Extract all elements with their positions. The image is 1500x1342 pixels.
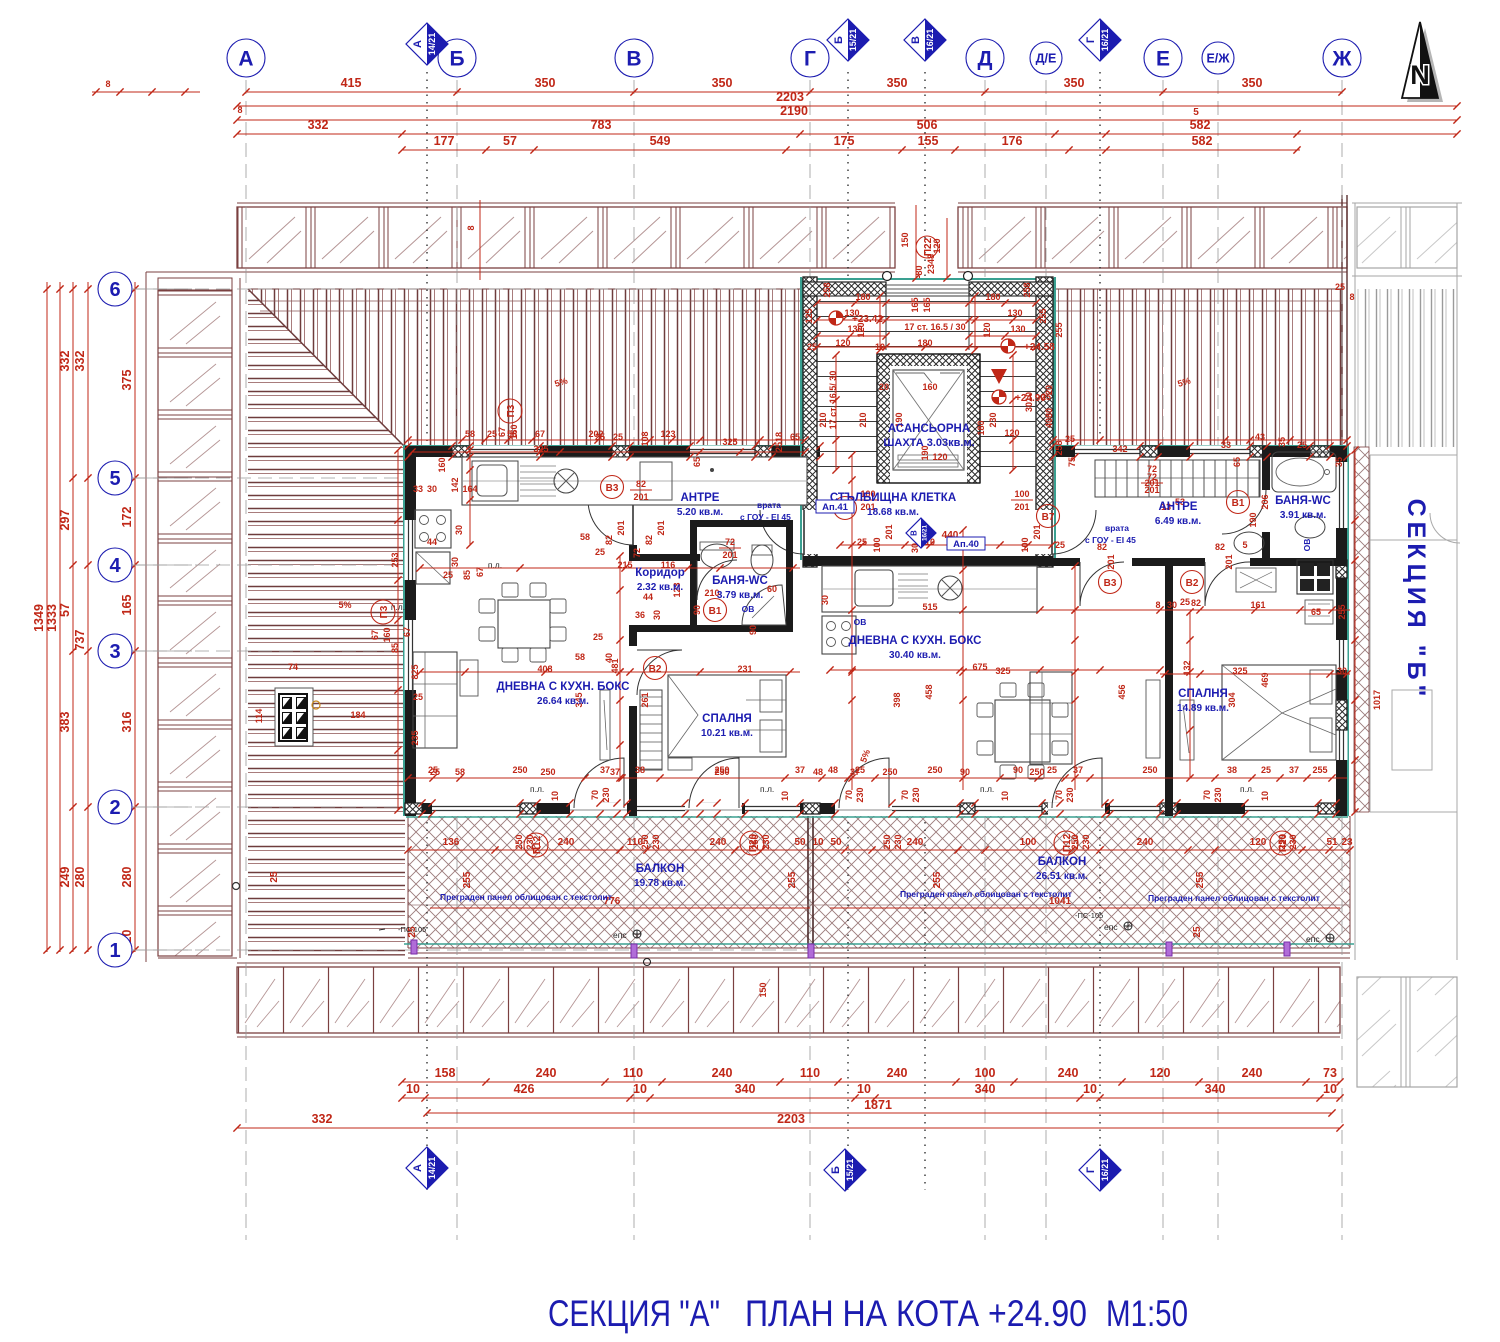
svg-text:4: 4 — [109, 555, 121, 577]
svg-text:130: 130 — [1007, 308, 1022, 318]
svg-text:5.20 кв.м.: 5.20 кв.м. — [677, 507, 724, 518]
svg-text:2190: 2190 — [780, 104, 808, 118]
svg-text:-ПС-105: -ПС-105 — [398, 925, 426, 934]
svg-text:врата: врата — [1105, 523, 1129, 533]
svg-text:82: 82 — [644, 535, 654, 545]
svg-text:255: 255 — [1038, 308, 1048, 323]
svg-text:25: 25 — [1065, 434, 1075, 444]
svg-text:180: 180 — [976, 420, 986, 435]
svg-text:А: А — [412, 1164, 424, 1172]
svg-text:332: 332 — [58, 351, 72, 372]
svg-text:110: 110 — [800, 1066, 820, 1080]
svg-text:250: 250 — [540, 767, 555, 777]
svg-text:481: 481 — [610, 658, 620, 673]
svg-text:25: 25 — [1261, 765, 1271, 775]
svg-text:Е: Е — [1156, 47, 1170, 70]
svg-text:250: 250 — [640, 834, 650, 849]
svg-text:230: 230 — [893, 834, 903, 849]
svg-text:250: 250 — [1142, 765, 1157, 775]
svg-text:10: 10 — [780, 791, 790, 801]
svg-text:120: 120 — [1150, 1066, 1171, 1080]
svg-text:Преграден панел облицован с те: Преграден панел облицован с текстолит — [1148, 893, 1320, 903]
svg-text:16/21: 16/21 — [1100, 29, 1110, 52]
svg-text:30: 30 — [454, 525, 464, 535]
svg-text:23: 23 — [1341, 837, 1353, 848]
svg-text:БАНЯ-WC: БАНЯ-WC — [1275, 495, 1331, 507]
svg-text:37: 37 — [1073, 765, 1083, 775]
svg-text:Ап.40: Ап.40 — [953, 539, 979, 550]
svg-text:250: 250 — [1029, 767, 1044, 777]
svg-text:230: 230 — [855, 787, 865, 802]
svg-text:255: 255 — [1312, 765, 1327, 775]
svg-text:65: 65 — [692, 457, 702, 467]
svg-text:57: 57 — [58, 603, 72, 617]
svg-text:201: 201 — [1032, 524, 1042, 539]
svg-text:СПАЛНЯ: СПАЛНЯ — [702, 713, 752, 725]
svg-text:36: 36 — [635, 610, 645, 620]
svg-text:70: 70 — [1202, 790, 1212, 800]
svg-text:70: 70 — [590, 790, 600, 800]
svg-text:25: 25 — [1055, 540, 1065, 550]
svg-text:п.л.: п.л. — [530, 784, 544, 794]
svg-text:515: 515 — [922, 602, 937, 612]
svg-text:Коридор: Коридор — [635, 567, 685, 579]
svg-text:201: 201 — [1224, 554, 1234, 569]
svg-text:2.32 кв.м.: 2.32 кв.м. — [637, 582, 684, 593]
svg-text:5%: 5% — [338, 600, 351, 610]
svg-text:255: 255 — [1054, 322, 1064, 337]
svg-text:240: 240 — [710, 837, 727, 848]
svg-text:30: 30 — [1167, 600, 1177, 610]
svg-text:8: 8 — [105, 79, 110, 89]
svg-text:Ап.41: Ап.41 — [822, 502, 849, 513]
svg-text:50: 50 — [830, 837, 842, 848]
svg-text:340: 340 — [1205, 1082, 1226, 1096]
svg-text:249: 249 — [58, 867, 72, 888]
svg-text:П3: П3 — [379, 605, 390, 618]
svg-text:67: 67 — [370, 630, 380, 640]
svg-text:Преграден панел облицован с те: Преграден панел облицован с текстолит — [900, 889, 1072, 899]
svg-text:250: 250 — [882, 767, 897, 777]
svg-text:58: 58 — [465, 429, 475, 439]
svg-text:10: 10 — [1260, 791, 1270, 801]
svg-text:206: 206 — [1260, 494, 1270, 509]
svg-text:44: 44 — [643, 592, 653, 602]
svg-text:37: 37 — [1289, 765, 1299, 775]
svg-text:БАНЯ-WC: БАНЯ-WC — [712, 575, 768, 587]
svg-text:2203: 2203 — [776, 90, 804, 104]
svg-text:120: 120 — [982, 322, 992, 337]
svg-text:258: 258 — [822, 282, 832, 297]
svg-text:СЕКЦИЯ "Б": СЕКЦИЯ "Б" — [1402, 499, 1430, 702]
svg-text:Б: Б — [833, 36, 845, 44]
svg-text:250: 250 — [882, 834, 892, 849]
svg-text:158: 158 — [435, 1066, 456, 1080]
svg-text:А: А — [412, 40, 424, 48]
svg-text:172: 172 — [120, 507, 134, 528]
svg-text:201: 201 — [722, 550, 737, 560]
svg-text:58: 58 — [575, 652, 585, 662]
svg-text:350: 350 — [535, 76, 556, 90]
svg-text:37: 37 — [610, 767, 620, 777]
svg-text:АНТРЕ: АНТРЕ — [1159, 501, 1198, 513]
svg-text:епс: епс — [1306, 934, 1320, 944]
svg-text:90: 90 — [692, 605, 702, 615]
svg-text:72: 72 — [1147, 472, 1157, 482]
svg-text:123: 123 — [660, 429, 675, 439]
svg-text:6.49 кв.м.: 6.49 кв.м. — [1155, 516, 1202, 527]
svg-text:п.л.: п.л. — [760, 784, 774, 794]
svg-text:73: 73 — [1323, 1066, 1337, 1080]
svg-text:10: 10 — [1000, 791, 1010, 801]
svg-text:БАЛКОН: БАЛКОН — [1038, 856, 1087, 868]
svg-text:епс: епс — [1104, 922, 1118, 932]
svg-text:8: 8 — [1155, 600, 1160, 610]
svg-text:350: 350 — [1064, 76, 1085, 90]
svg-text:25: 25 — [1180, 597, 1190, 607]
svg-text:261: 261 — [640, 692, 650, 707]
svg-text:210: 210 — [818, 412, 828, 427]
svg-text:1017: 1017 — [1372, 690, 1382, 710]
svg-text:50: 50 — [794, 837, 806, 848]
svg-text:240: 240 — [558, 837, 575, 848]
svg-text:25: 25 — [1335, 282, 1345, 292]
svg-text:82: 82 — [1191, 598, 1201, 608]
svg-text:160: 160 — [437, 457, 447, 472]
svg-text:176: 176 — [1002, 134, 1023, 148]
svg-text:120: 120 — [932, 452, 947, 462]
svg-text:250: 250 — [927, 765, 942, 775]
svg-text:ПЛАН НА КОТА +24.90: ПЛАН НА КОТА +24.90 — [745, 1293, 1087, 1334]
svg-text:114: 114 — [254, 709, 264, 724]
svg-text:с ГОУ - ЕІ 45: с ГОУ - ЕІ 45 — [1085, 535, 1136, 545]
svg-text:19.78 кв.м.: 19.78 кв.м. — [634, 878, 686, 889]
svg-text:30: 30 — [820, 595, 830, 605]
svg-text:426: 426 — [514, 1082, 535, 1096]
svg-text:201: 201 — [656, 520, 666, 535]
svg-text:375: 375 — [120, 370, 134, 391]
svg-text:Преграден панел облицован с те: Преграден панел облицован с текстолит — [440, 892, 612, 902]
svg-text:4080: 4080 — [1044, 408, 1054, 428]
svg-text:5: 5 — [109, 468, 120, 490]
svg-text:В3: В3 — [606, 483, 619, 494]
svg-text:125: 125 — [804, 308, 814, 323]
svg-text:67: 67 — [535, 429, 545, 439]
svg-text:П12: П12 — [1062, 833, 1073, 852]
svg-text:+24.90: +24.90 — [1015, 393, 1046, 404]
svg-text:Г: Г — [804, 47, 816, 70]
svg-text:85: 85 — [462, 570, 472, 580]
svg-text:25: 25 — [430, 767, 440, 777]
svg-text:2: 2 — [109, 797, 120, 819]
svg-text:180: 180 — [985, 292, 1000, 302]
svg-text:N: N — [1410, 60, 1430, 90]
svg-text:250: 250 — [714, 767, 729, 777]
svg-text:10.21 кв.м.: 10.21 кв.м. — [701, 728, 753, 739]
svg-text:В3: В3 — [1104, 578, 1117, 589]
svg-text:10: 10 — [857, 1082, 871, 1096]
svg-text:230: 230 — [651, 834, 661, 849]
svg-text:Ж: Ж — [1332, 47, 1353, 70]
svg-text:255: 255 — [787, 871, 798, 888]
svg-text:25: 25 — [595, 547, 605, 557]
svg-text:75: 75 — [1067, 457, 1077, 467]
svg-text:+24.58: +24.58 — [1024, 342, 1055, 353]
svg-text:70: 70 — [1054, 790, 1064, 800]
svg-text:ДНЕВНА С КУХН. БОКС: ДНЕВНА С КУХН. БОКС — [497, 681, 630, 693]
svg-text:5: 5 — [1242, 540, 1247, 550]
svg-text:82: 82 — [1215, 542, 1225, 552]
svg-text:255: 255 — [932, 871, 943, 888]
svg-text:А: А — [238, 47, 253, 70]
svg-text:38: 38 — [1227, 765, 1237, 775]
svg-text:ОВ: ОВ — [742, 604, 755, 614]
svg-text:В1: В1 — [1232, 498, 1245, 509]
svg-text:332: 332 — [312, 1112, 333, 1126]
svg-text:СЕКЦИЯ "А": СЕКЦИЯ "А" — [548, 1293, 720, 1334]
svg-text:456: 456 — [1117, 684, 1127, 699]
svg-text:65: 65 — [1311, 607, 1321, 617]
svg-text:35: 35 — [1334, 457, 1344, 467]
svg-text:17 ст. 16.5 / 30: 17 ст. 16.5 / 30 — [904, 322, 965, 332]
svg-text:160: 160 — [382, 627, 392, 642]
svg-text:825: 825 — [410, 664, 420, 679]
svg-text:33: 33 — [1221, 440, 1231, 450]
svg-text:44: 44 — [427, 537, 437, 547]
svg-text:142: 142 — [450, 477, 460, 492]
svg-text:П20: П20 — [1278, 833, 1289, 852]
svg-text:177: 177 — [434, 134, 455, 148]
svg-text:37: 37 — [600, 765, 610, 775]
svg-text:582: 582 — [1192, 134, 1213, 148]
svg-text:130: 130 — [847, 324, 862, 334]
svg-text:582: 582 — [1190, 118, 1211, 132]
svg-text:ОВ: ОВ — [1302, 539, 1312, 552]
svg-text:14.89 кв.м.: 14.89 кв.м. — [1177, 703, 1229, 714]
svg-text:240: 240 — [1137, 837, 1154, 848]
svg-text:165: 165 — [120, 595, 134, 616]
svg-text:67: 67 — [497, 427, 507, 437]
svg-text:332: 332 — [308, 118, 329, 132]
svg-text:150: 150 — [900, 232, 910, 247]
svg-text:201: 201 — [616, 520, 626, 535]
svg-text:15/21: 15/21 — [845, 1159, 855, 1182]
svg-text:10: 10 — [812, 837, 824, 848]
svg-text:+23.42: +23.42 — [852, 314, 883, 325]
svg-text:155: 155 — [918, 134, 939, 148]
svg-text:30: 30 — [450, 557, 460, 567]
svg-text:297: 297 — [58, 510, 72, 531]
svg-text:100: 100 — [1020, 837, 1037, 848]
svg-text:25: 25 — [593, 632, 603, 642]
svg-text:Д: Д — [978, 47, 993, 70]
svg-text:врата: врата — [757, 500, 781, 510]
svg-text:3.91 кв.м.: 3.91 кв.м. — [1280, 510, 1327, 521]
svg-text:33: 33 — [413, 484, 423, 494]
svg-text:БАЛКОН: БАЛКОН — [636, 863, 685, 875]
svg-text:25: 25 — [807, 342, 817, 352]
svg-text:67: 67 — [402, 627, 412, 637]
svg-text:255: 255 — [462, 871, 473, 888]
svg-text:25: 25 — [1047, 765, 1057, 775]
svg-text:58: 58 — [580, 532, 590, 542]
svg-text:240: 240 — [1242, 1066, 1263, 1080]
svg-text:30.40 кв.м.: 30.40 кв.м. — [889, 650, 941, 661]
svg-text:230: 230 — [988, 412, 998, 427]
svg-text:20: 20 — [879, 382, 889, 392]
svg-text:В: В — [910, 530, 919, 536]
svg-text:342: 342 — [1112, 444, 1127, 454]
svg-text:175: 175 — [834, 134, 855, 148]
svg-text:10: 10 — [550, 791, 560, 801]
svg-text:783: 783 — [591, 118, 612, 132]
svg-text:74: 74 — [288, 662, 298, 672]
svg-text:Б: Б — [449, 47, 464, 70]
svg-text:26.64 кв.м.: 26.64 кв.м. — [537, 696, 589, 707]
svg-text:ШАХТА 3.03кв.м.: ШАХТА 3.03кв.м. — [883, 437, 974, 449]
svg-text:2518: 2518 — [774, 432, 784, 452]
svg-text:398: 398 — [892, 692, 902, 707]
svg-text:3.79 кв.м.: 3.79 кв.м. — [717, 590, 764, 601]
svg-text:30: 30 — [652, 610, 662, 620]
svg-text:90: 90 — [1013, 765, 1023, 775]
svg-text:48: 48 — [828, 765, 838, 775]
svg-text:108: 108 — [640, 431, 650, 446]
svg-text:16/21: 16/21 — [1100, 1159, 1110, 1182]
svg-text:240: 240 — [1058, 1066, 1079, 1080]
svg-text:201: 201 — [633, 492, 648, 502]
svg-text:190: 190 — [1248, 512, 1258, 527]
svg-text:201: 201 — [1144, 485, 1159, 495]
svg-text:14/21: 14/21 — [427, 33, 437, 56]
svg-text:Г: Г — [1085, 36, 1097, 43]
svg-text:120: 120 — [1250, 837, 1267, 848]
svg-text:280: 280 — [120, 867, 134, 888]
svg-text:14/21: 14/21 — [427, 1157, 437, 1180]
svg-text:8: 8 — [1349, 292, 1354, 302]
svg-text:п.л.: п.л. — [980, 784, 994, 794]
svg-text:16/21: 16/21 — [925, 29, 935, 52]
svg-text:258: 258 — [1022, 282, 1032, 297]
svg-text:10: 10 — [633, 1082, 647, 1096]
svg-text:-80: -80 — [914, 265, 924, 278]
svg-text:26.51 кв.м.: 26.51 кв.м. — [1036, 871, 1088, 882]
svg-text:25: 25 — [487, 429, 497, 439]
svg-text:57: 57 — [503, 134, 517, 148]
svg-text:100: 100 — [1014, 489, 1029, 499]
svg-text:332: 332 — [73, 351, 87, 372]
svg-text:М1:50: М1:50 — [1106, 1293, 1188, 1334]
svg-text:СПАЛНЯ: СПАЛНЯ — [1178, 688, 1228, 700]
svg-text:469: 469 — [1260, 672, 1270, 687]
svg-text:110: 110 — [623, 1066, 643, 1080]
svg-text:Д/Е: Д/Е — [1036, 51, 1057, 65]
svg-text:350: 350 — [887, 76, 908, 90]
svg-text:120: 120 — [1004, 428, 1019, 438]
svg-text:5: 5 — [1193, 107, 1199, 118]
svg-text:58: 58 — [455, 767, 465, 777]
svg-text:230: 230 — [1081, 834, 1091, 849]
svg-text:100: 100 — [975, 1066, 996, 1080]
svg-text:10: 10 — [406, 1082, 420, 1096]
svg-text:епс: епс — [613, 930, 627, 940]
svg-text:350: 350 — [1242, 76, 1263, 90]
svg-text:160: 160 — [922, 382, 937, 392]
svg-text:325: 325 — [995, 666, 1010, 676]
svg-text:25: 25 — [269, 871, 280, 883]
svg-text:506: 506 — [917, 118, 938, 132]
svg-text:-ПС-105: -ПС-105 — [1075, 911, 1103, 920]
svg-text:230: 230 — [1213, 787, 1223, 802]
svg-text:2203: 2203 — [777, 1112, 805, 1126]
svg-text:230: 230 — [1065, 787, 1075, 802]
svg-text:250: 250 — [514, 834, 524, 849]
svg-text:30: 30 — [427, 484, 437, 494]
svg-text:Б: Б — [830, 1166, 842, 1174]
svg-text:10: 10 — [1323, 1082, 1337, 1096]
svg-text:1871: 1871 — [864, 1098, 892, 1112]
svg-text:ОВ: ОВ — [854, 617, 867, 627]
svg-text:6: 6 — [109, 279, 120, 301]
svg-text:325: 325 — [722, 437, 737, 447]
svg-text:15/21: 15/21 — [848, 29, 858, 52]
svg-text:В: В — [910, 36, 922, 44]
svg-text:ДНЕВНА С КУХН. БОКС: ДНЕВНА С КУХН. БОКС — [849, 635, 982, 647]
svg-text:8: 8 — [237, 105, 242, 115]
svg-text:10: 10 — [1083, 1082, 1097, 1096]
svg-text:В: В — [626, 47, 641, 70]
svg-text:1333: 1333 — [45, 604, 59, 632]
svg-text:35: 35 — [1277, 437, 1287, 447]
svg-text:280: 280 — [73, 867, 87, 888]
svg-text:340: 340 — [975, 1082, 996, 1096]
svg-text:3: 3 — [109, 641, 120, 663]
svg-text:25: 25 — [413, 692, 423, 702]
svg-text:25: 25 — [443, 570, 453, 580]
svg-text:150: 150 — [758, 982, 768, 997]
svg-text:201: 201 — [1014, 502, 1029, 512]
svg-text:1349: 1349 — [32, 604, 46, 632]
svg-text:165: 165 — [922, 297, 932, 312]
svg-text:51: 51 — [1326, 837, 1338, 848]
svg-text:201: 201 — [884, 524, 894, 539]
svg-text:240: 240 — [907, 837, 924, 848]
svg-text:37: 37 — [795, 765, 805, 775]
svg-text:161: 161 — [1250, 600, 1265, 610]
svg-text:340: 340 — [735, 1082, 756, 1096]
svg-text:250: 250 — [512, 765, 527, 775]
svg-text:255: 255 — [1337, 604, 1347, 619]
svg-text:549: 549 — [650, 134, 671, 148]
svg-text:255: 255 — [1195, 871, 1206, 888]
svg-text:с ГОУ - ЕІ 45: с ГОУ - ЕІ 45 — [740, 512, 791, 522]
svg-text:737: 737 — [73, 630, 87, 651]
svg-text:П12: П12 — [532, 835, 543, 854]
svg-text:82: 82 — [636, 479, 646, 489]
svg-text:130: 130 — [1010, 324, 1025, 334]
svg-text:184: 184 — [350, 710, 365, 720]
svg-text:18.68 кв.м.: 18.68 кв.м. — [867, 507, 919, 518]
svg-text:П20: П20 — [748, 833, 759, 852]
svg-text:240: 240 — [536, 1066, 557, 1080]
svg-text:Г: Г — [1085, 1166, 1097, 1173]
svg-text:90: 90 — [748, 625, 758, 635]
svg-text:Е/Ж: Е/Ж — [1206, 51, 1230, 65]
svg-text:60: 60 — [767, 584, 777, 594]
svg-text:316: 316 — [120, 712, 134, 733]
svg-text:230: 230 — [911, 787, 921, 802]
svg-text:240: 240 — [712, 1066, 733, 1080]
